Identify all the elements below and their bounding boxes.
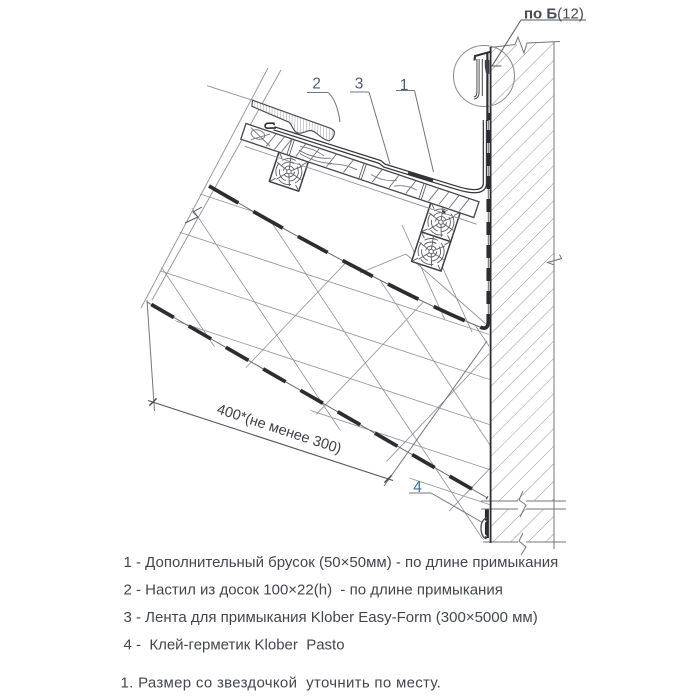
svg-text:по Б(12): по Б(12) [524,6,584,23]
svg-text:2 - Настил из досок 100×22(h): 2 - Настил из досок 100×22(h) - по длине… [124,582,503,599]
svg-text:1: 1 [400,77,409,94]
svg-text:400*(не менее 300): 400*(не менее 300) [215,402,343,458]
svg-text:1 - Дополнительный брусок (50×: 1 - Дополнительный брусок (50×50мм) - по… [124,554,559,571]
svg-text:1. Размер со звездочкой уточн: 1. Размер со звездочкой уточнить по мест… [121,675,442,692]
svg-text:4 - Клей-герметик Klober Pas: 4 - Клей-герметик Klober Pasto [124,637,345,654]
svg-text:3: 3 [355,76,364,93]
svg-text:3 - Лента для примыкания Klobe: 3 - Лента для примыкания Klober Easy-For… [124,609,538,626]
svg-text:2: 2 [312,76,321,93]
